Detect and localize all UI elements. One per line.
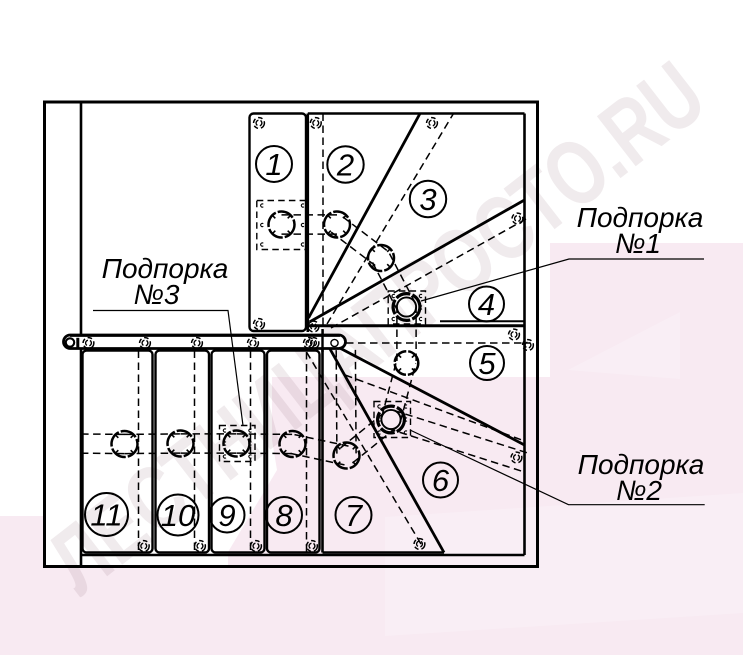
- svg-text:№1: №1: [615, 228, 661, 259]
- svg-text:№3: №3: [134, 279, 180, 310]
- svg-text:9: 9: [218, 498, 235, 533]
- svg-text:4: 4: [478, 287, 495, 322]
- svg-text:2: 2: [336, 148, 354, 183]
- svg-text:5: 5: [478, 346, 496, 381]
- svg-text:6: 6: [432, 463, 450, 498]
- svg-text:8: 8: [275, 498, 293, 533]
- svg-text:№2: №2: [616, 475, 662, 506]
- svg-text:10: 10: [161, 498, 195, 533]
- svg-text:11: 11: [90, 498, 122, 533]
- svg-text:3: 3: [419, 182, 436, 217]
- svg-text:7: 7: [345, 498, 364, 533]
- svg-text:1: 1: [265, 147, 282, 182]
